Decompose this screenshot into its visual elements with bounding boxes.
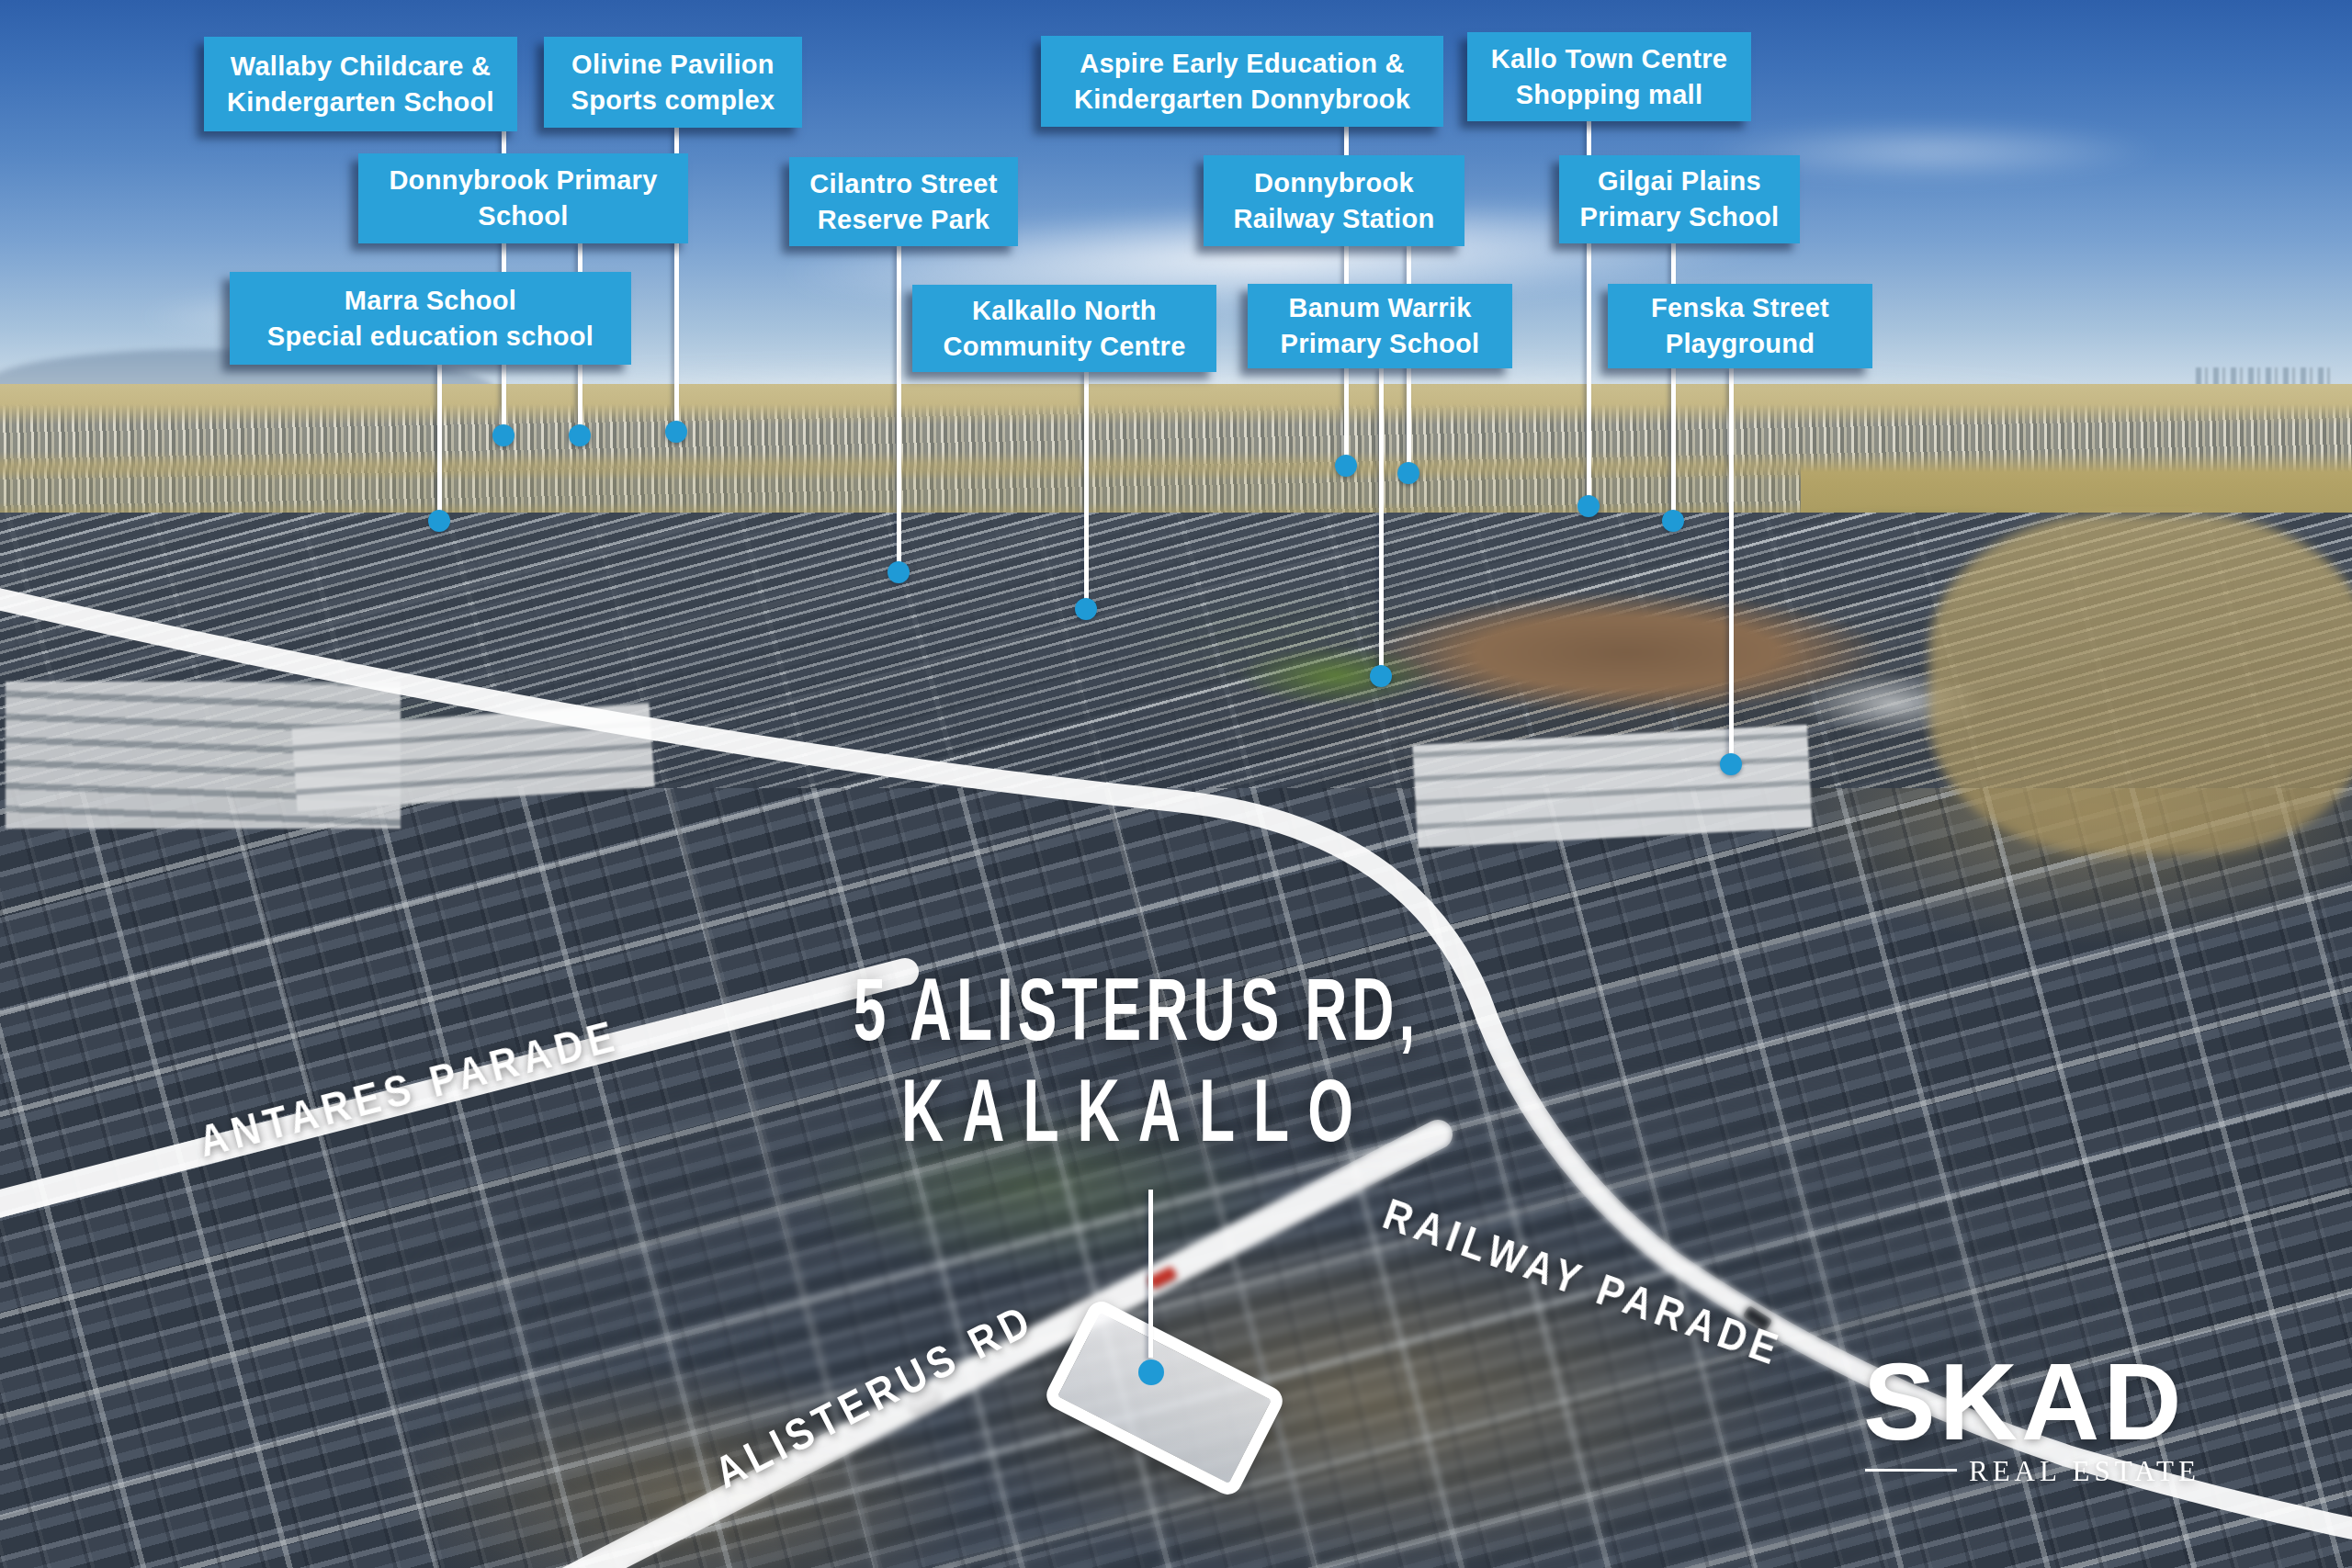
location-dot-fenska-playground xyxy=(1720,753,1742,775)
callout-donnybrook-primary: Donnybrook PrimarySchool xyxy=(358,153,688,243)
callout-text: Olivine Pavilion xyxy=(571,47,775,83)
callout-text: Aspire Early Education & xyxy=(1080,46,1405,82)
callout-text: Community Centre xyxy=(943,329,1185,365)
callout-text: School xyxy=(478,198,568,234)
callout-aspire-early-education: Aspire Early Education &Kindergarten Don… xyxy=(1041,36,1443,127)
callout-text: Primary School xyxy=(1281,326,1480,362)
location-dot-banum-warrik xyxy=(1370,665,1392,687)
leader-line-fenska-playground xyxy=(1729,367,1734,764)
property-leader-line xyxy=(1148,1190,1153,1358)
property-address-line2: KALKALLO xyxy=(901,1060,1372,1162)
callout-text: Cilantro Street xyxy=(809,166,997,202)
leader-line-banum-warrik xyxy=(1379,367,1384,676)
callout-kalkallo-north: Kalkallo NorthCommunity Centre xyxy=(912,285,1216,372)
leader-line-kalkallo-north xyxy=(1084,371,1089,609)
location-dot-kallo-town-centre xyxy=(1577,495,1600,517)
callout-text: Special education school xyxy=(267,319,594,355)
leader-line-cilantro-reserve xyxy=(897,245,901,572)
location-dot-aspire-early-education xyxy=(1335,455,1357,477)
callout-text: Wallaby Childcare & xyxy=(231,49,491,85)
location-dot-kalkallo-north xyxy=(1075,598,1097,620)
callout-donnybrook-railway: DonnybrookRailway Station xyxy=(1204,155,1464,246)
property-address-line1: 5 ALISTERUS RD, xyxy=(854,959,1420,1061)
location-dot-donnybrook-primary xyxy=(569,424,591,446)
location-dot-gilgai-plains xyxy=(1662,510,1684,532)
location-dot-donnybrook-railway xyxy=(1397,462,1419,484)
callout-text: Shopping mall xyxy=(1516,77,1703,113)
callout-text: Sports complex xyxy=(571,83,775,118)
callout-wallaby-childcare: Wallaby Childcare &Kindergarten School xyxy=(204,37,517,131)
location-dot-wallaby-childcare xyxy=(492,424,514,446)
callout-text: Fenska Street xyxy=(1651,290,1829,326)
callout-text: Kallo Town Centre xyxy=(1491,41,1728,77)
agency-logo-rule xyxy=(1865,1469,1957,1472)
aerial-marketing-image: Wallaby Childcare &Kindergarten SchoolOl… xyxy=(0,0,2352,1568)
leader-line-marra-school xyxy=(437,364,442,521)
callout-fenska-playground: Fenska StreetPlayground xyxy=(1608,284,1872,368)
callout-text: Playground xyxy=(1666,326,1815,362)
callout-text: Reserve Park xyxy=(818,202,989,238)
location-dot-cilantro-reserve xyxy=(888,561,910,583)
agency-logo-tagline: REAL ESTATE xyxy=(1969,1455,2200,1488)
callout-kallo-town-centre: Kallo Town CentreShopping mall xyxy=(1467,32,1751,121)
callout-cilantro-reserve: Cilantro StreetReserve Park xyxy=(789,157,1018,246)
location-dot-olivine-pavilion xyxy=(665,421,687,443)
callout-text: Kindergarten Donnybrook xyxy=(1074,82,1410,118)
callout-text: Gilgai Plains xyxy=(1598,164,1761,199)
callout-banum-warrik: Banum WarrikPrimary School xyxy=(1248,284,1512,368)
callout-text: Marra School xyxy=(345,283,516,319)
agency-logo-brand: SKAD xyxy=(1863,1339,2185,1464)
callout-marra-school: Marra SchoolSpecial education school xyxy=(230,272,631,365)
property-marker-dot xyxy=(1138,1359,1164,1385)
callout-text: Banum Warrik xyxy=(1288,290,1471,326)
callout-text: Railway Station xyxy=(1234,201,1435,237)
location-dot-marra-school xyxy=(428,510,450,532)
callout-olivine-pavilion: Olivine PavilionSports complex xyxy=(544,37,802,128)
callout-text: Kalkallo North xyxy=(972,293,1157,329)
callout-text: Primary School xyxy=(1580,199,1780,235)
callout-text: Donnybrook xyxy=(1254,165,1414,201)
callout-text: Kindergarten School xyxy=(227,85,494,120)
callout-text: Donnybrook Primary xyxy=(389,163,657,198)
callout-gilgai-plains: Gilgai PlainsPrimary School xyxy=(1559,155,1800,243)
